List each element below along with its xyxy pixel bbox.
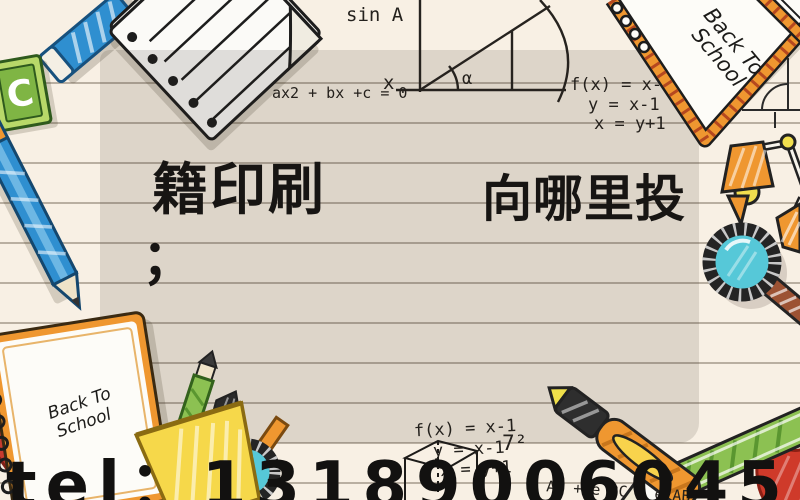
headline-semicolon: ； xyxy=(142,234,194,286)
headline-text-left: 籍印刷 xyxy=(152,163,326,219)
headline-text-right: 向哪里投 xyxy=(482,174,686,224)
back-to-school-notebook-tr-icon: Back To School xyxy=(608,0,800,140)
school-doodle-poster: α x sin A ax2 + bx +c = 0 3X2+ f(x) = x-… xyxy=(0,0,800,500)
blue-pencil-icon xyxy=(0,118,91,317)
letter-c-card-icon: C xyxy=(0,54,58,137)
phone-number-text: tel：13189006045 xyxy=(6,434,791,500)
over-doodle-layer: C Back To School xyxy=(0,0,800,500)
